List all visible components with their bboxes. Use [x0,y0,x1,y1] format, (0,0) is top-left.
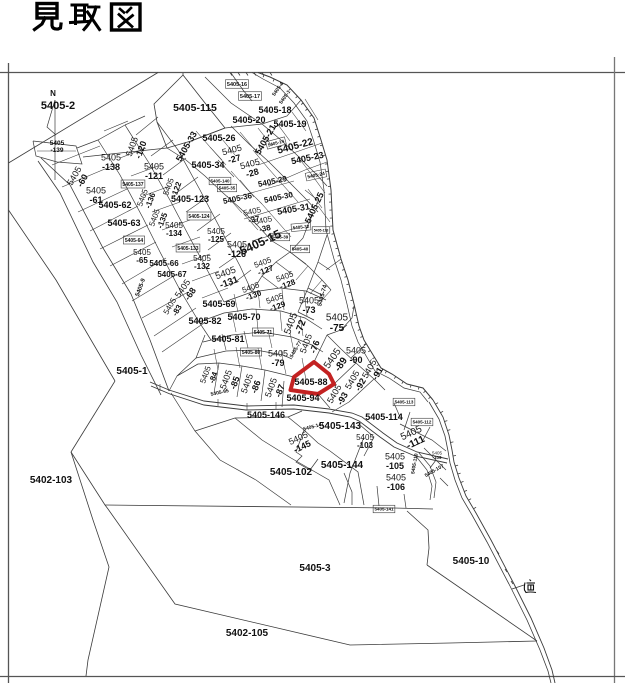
svg-text:5405-113: 5405-113 [395,400,414,405]
svg-text:5405-71: 5405-71 [254,330,273,336]
svg-text:5405-1: 5405-1 [116,366,148,377]
svg-text:5405-137: 5405-137 [122,182,143,188]
svg-text:5405-16: 5405-16 [227,82,247,88]
svg-text:5405-62: 5405-62 [98,200,131,210]
svg-text:5405-40: 5405-40 [292,247,309,252]
svg-text:5405-81: 5405-81 [211,334,244,344]
svg-text:5405-32: 5405-32 [293,224,310,230]
svg-text:5405-110: 5405-110 [410,453,420,475]
svg-text:-28: -28 [245,166,260,179]
svg-text:5405-82: 5405-82 [188,316,221,326]
svg-text:-132: -132 [194,262,211,271]
svg-text:5405-80: 5405-80 [242,350,261,356]
svg-text:5405-112: 5405-112 [413,420,432,425]
svg-text:5405-140: 5405-140 [210,179,230,184]
svg-text:5405-107: 5405-107 [424,463,445,479]
svg-text:5405-69: 5405-69 [202,299,235,309]
svg-text:-103: -103 [357,441,374,450]
svg-text:-75: -75 [330,323,345,334]
svg-text:5405-67: 5405-67 [157,270,187,279]
svg-text:5405-133: 5405-133 [177,246,198,252]
svg-text:5405: 5405 [326,313,349,324]
svg-text:5405-118: 5405-118 [314,228,329,232]
svg-text:5405-102: 5405-102 [270,467,313,478]
svg-text:5405: 5405 [50,140,65,147]
svg-text:5405-10: 5405-10 [453,556,490,567]
svg-text:5405-115: 5405-115 [173,102,217,114]
svg-text:5405-9: 5405-9 [135,277,147,297]
svg-text:-138: -138 [102,162,120,172]
svg-text:5405-63: 5405-63 [107,218,140,228]
svg-text:N: N [50,89,56,98]
svg-text:-121: -121 [145,171,163,181]
svg-text:-109: -109 [432,455,442,460]
svg-text:5405-66: 5405-66 [149,259,179,268]
svg-text:5405-64: 5405-64 [125,238,144,244]
svg-text:-90: -90 [349,355,362,365]
svg-text:5405-141: 5405-141 [374,507,394,512]
svg-text:5405-146: 5405-146 [247,410,285,420]
svg-text:5405-2: 5405-2 [41,100,75,112]
svg-text:5405-123: 5405-123 [171,194,209,204]
svg-text:5405-74: 5405-74 [317,284,329,307]
svg-text:5405-95: 5405-95 [210,388,229,398]
svg-text:5405-19: 5405-19 [273,119,306,129]
svg-text:-125: -125 [208,235,225,244]
svg-text:-79: -79 [271,358,284,368]
svg-text:5405-88: 5405-88 [294,377,327,387]
svg-text:5405-144: 5405-144 [321,460,364,471]
svg-text:5405-124: 5405-124 [188,214,209,220]
svg-text:-65: -65 [136,256,148,265]
svg-text:5405-94: 5405-94 [286,393,319,403]
svg-text:-139: -139 [50,147,63,154]
svg-text:-73: -73 [302,305,315,315]
svg-text:5405-143: 5405-143 [319,421,362,432]
svg-text:5405-3: 5405-3 [299,563,331,574]
svg-text:5405-39: 5405-39 [272,235,289,240]
svg-text:-134: -134 [166,229,183,238]
svg-text:5405-34: 5405-34 [191,160,224,170]
svg-text:5402-103: 5402-103 [30,475,73,486]
svg-text:5402-105: 5402-105 [226,628,269,639]
svg-text:5405-26: 5405-26 [202,133,235,143]
svg-text:5405-17: 5405-17 [240,94,260,100]
svg-text:5405-18: 5405-18 [258,105,291,115]
svg-text:5405-35: 5405-35 [219,186,236,191]
svg-text:5405-20: 5405-20 [232,115,265,125]
svg-text:5405-33: 5405-33 [174,130,199,164]
svg-text:5405-114: 5405-114 [365,412,403,422]
svg-text:5405-36: 5405-36 [222,191,253,206]
svg-text:5405-70: 5405-70 [227,312,260,322]
svg-text:-106: -106 [387,482,405,492]
svg-text:5405-30: 5405-30 [263,190,294,205]
svg-text:-105: -105 [386,461,404,471]
svg-text:5405-1: 5405-1 [278,89,292,105]
